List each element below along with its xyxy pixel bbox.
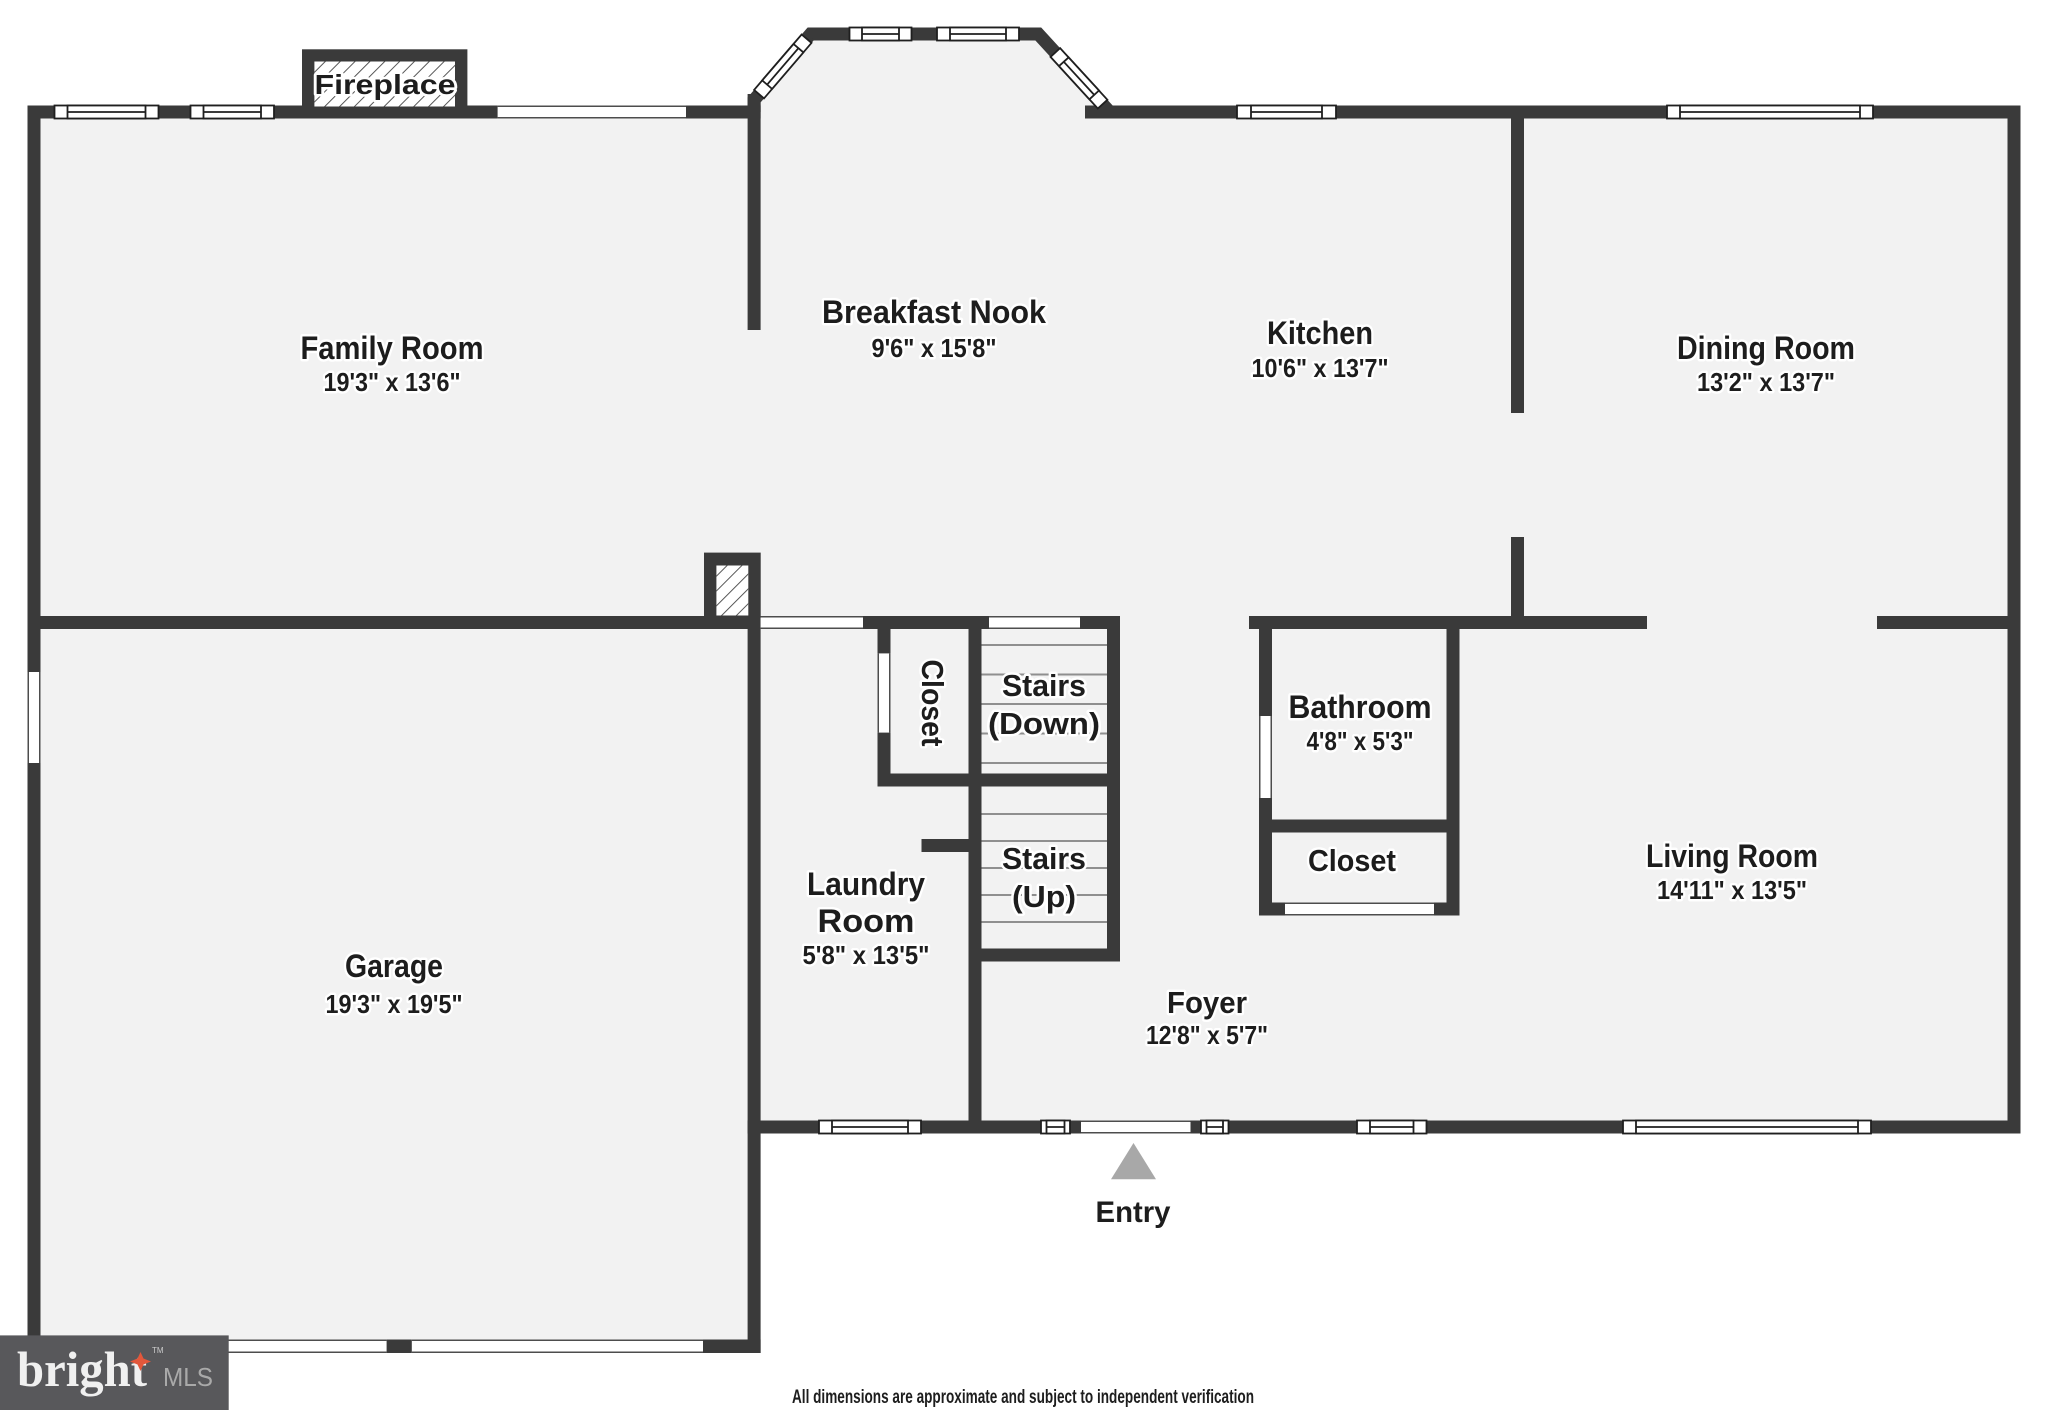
svg-text:MLS: MLS <box>163 1362 213 1392</box>
svg-text:Closet: Closet <box>915 660 950 747</box>
svg-text:Kitchen: Kitchen <box>1267 315 1373 351</box>
svg-text:Stairs: Stairs <box>1002 841 1086 876</box>
svg-text:TM: TM <box>152 1346 164 1355</box>
svg-text:14'11" x 13'5": 14'11" x 13'5" <box>1657 875 1807 905</box>
svg-text:12'8" x 5'7": 12'8" x 5'7" <box>1146 1020 1268 1050</box>
svg-text:4'8" x 5'3": 4'8" x 5'3" <box>1307 726 1414 756</box>
svg-text:Dining Room: Dining Room <box>1677 330 1855 366</box>
svg-text:Entry: Entry <box>1096 1196 1171 1229</box>
svg-text:Room: Room <box>818 903 915 939</box>
svg-text:bright: bright <box>17 1341 147 1397</box>
svg-text:Laundry: Laundry <box>807 866 925 902</box>
svg-text:Living Room: Living Room <box>1646 838 1818 874</box>
svg-text:Foyer: Foyer <box>1167 985 1247 1020</box>
svg-text:19'3" x 13'6": 19'3" x 13'6" <box>324 367 461 397</box>
svg-text:Family Room: Family Room <box>301 330 484 366</box>
svg-text:Breakfast Nook: Breakfast Nook <box>822 294 1046 330</box>
svg-text:5'8" x 13'5": 5'8" x 13'5" <box>803 940 930 970</box>
svg-text:All dimensions are approximate: All dimensions are approximate and subje… <box>792 1387 1254 1408</box>
svg-text:Garage: Garage <box>345 948 443 984</box>
svg-text:(Up): (Up) <box>1012 879 1076 914</box>
svg-text:(Down): (Down) <box>988 706 1100 741</box>
svg-text:Bathroom: Bathroom <box>1289 689 1432 725</box>
svg-text:Stairs: Stairs <box>1002 668 1086 703</box>
svg-text:Fireplace: Fireplace <box>315 69 456 100</box>
svg-text:13'2" x 13'7": 13'2" x 13'7" <box>1697 367 1835 397</box>
svg-text:9'6" x 15'8": 9'6" x 15'8" <box>872 333 997 363</box>
svg-text:Closet: Closet <box>1308 843 1396 878</box>
svg-text:19'3" x 19'5": 19'3" x 19'5" <box>326 989 463 1019</box>
svg-text:10'6" x 13'7": 10'6" x 13'7" <box>1252 353 1389 383</box>
